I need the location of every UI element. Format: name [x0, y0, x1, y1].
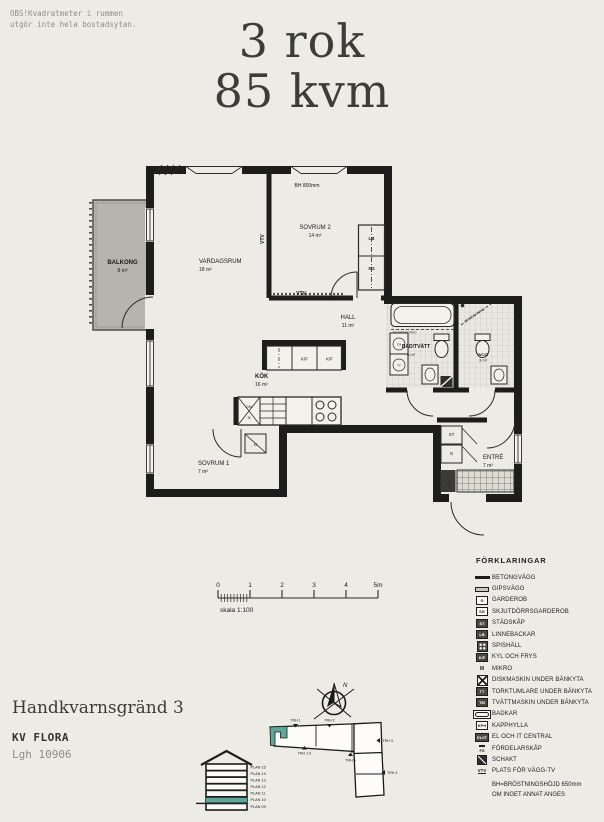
title-rooms: 3 rok	[0, 16, 604, 66]
address-block: Handkvarnsgränd 3 KV FLORA Lgh 10906	[12, 698, 184, 761]
highlighted-floor-band	[206, 798, 247, 803]
tm-label: TM	[397, 343, 402, 347]
dryer-icon: TT	[476, 687, 488, 696]
legend-label: SPISHÄLL	[492, 643, 521, 649]
legend-label: BADKAR	[492, 711, 517, 717]
trh-label-3: TRH 3	[383, 739, 393, 743]
scale-bar: 0 1 2 3 4 5m skala 1:100	[206, 578, 386, 620]
floor-label-11: PLAN 11	[251, 792, 266, 796]
scale-tick-5: 5m	[373, 582, 382, 589]
floor-labels: PLAN 15 PLAN 14 PLAN 13 PLAN 12 PLAN 11 …	[251, 766, 266, 809]
sink-wcd	[491, 366, 507, 384]
plaster-wall-icon	[475, 587, 489, 592]
scale-tick-3: 3	[312, 582, 316, 589]
page-title: 3 rok 85 kvm	[0, 16, 604, 116]
floor-label-14: PLAN 14	[251, 772, 266, 776]
g-sovrum1-label: G	[254, 442, 258, 447]
legend-item: SCHAKT	[472, 754, 600, 765]
trh-label-4: TRH 4	[387, 771, 397, 775]
coat-rack-area	[457, 470, 514, 492]
vardagsrum-area: 18 m²	[199, 267, 212, 273]
trh-label-5: TRH 5	[345, 759, 355, 763]
kitchen-counter	[234, 397, 342, 425]
vtv-label: VTV	[296, 291, 306, 297]
trh-label-6: TRH 1-2	[298, 752, 312, 756]
legend-item: FSFÖRDELARSKÅP	[472, 743, 600, 754]
tt-label: TT	[397, 364, 401, 368]
street-address: Handkvarnsgränd 3	[12, 698, 184, 718]
legend-label: PLATS FÖR VÄGG-TV	[492, 768, 555, 774]
legend-label: KYL OCH FRYS	[492, 654, 537, 660]
balkong-area: 8 m²	[118, 268, 128, 274]
north-label: N	[343, 683, 348, 689]
legend-label: KAPPHYLLA	[492, 723, 528, 729]
legend-item: LBLINNEBACKAR	[472, 629, 600, 640]
building-elevation: PLAN 15 PLAN 14 PLAN 13 PLAN 12 PLAN 11 …	[196, 748, 276, 816]
entre-area: 7 m²	[483, 463, 493, 469]
washer-dryer-stack	[390, 333, 408, 375]
trh-label-1: TRH 1	[290, 719, 300, 723]
footnote-line-2: OM INGET ANNAT ANGES	[492, 791, 600, 801]
roof	[201, 751, 252, 765]
hall-label: HALL	[340, 315, 356, 321]
legend-item: BETONGVÄGG	[472, 572, 600, 583]
wardrobe-icon: G	[476, 596, 488, 605]
legend-label: TVÄTTMASKIN UNDER BÄNKYTA	[492, 700, 589, 706]
legend-item: KPHKAPPHYLLA	[472, 720, 600, 731]
scale-tick-2: 2	[280, 582, 284, 589]
legend-label: MIKRO	[492, 666, 512, 672]
floor-plan: BALKONG 8 m² VARDAGSRUM 18 m² SOVRUM 2 1…	[85, 148, 535, 540]
legend-label: SKJUTDÖRRSGARDEROB	[492, 609, 569, 615]
scale-tick-1: 1	[248, 582, 252, 589]
sliding-wardrobe-icon: SG	[476, 607, 488, 616]
vardagsrum-label: VARDAGSRUM	[199, 259, 242, 265]
legend-label: GIPSVÄGG	[492, 586, 524, 592]
legend-label: DISKMASKIN UNDER BÄNKYTA	[492, 677, 584, 683]
wcd-label: WC/D	[478, 352, 489, 357]
legend-label: EL OCH IT CENTRAL	[492, 734, 552, 740]
scale-tick-0: 0	[216, 582, 220, 589]
bh-label: BH 800mm	[294, 183, 319, 189]
washer-icon: TM	[476, 698, 488, 707]
balkong-label: BALKONG	[107, 260, 138, 266]
dm-label: DM	[246, 405, 251, 409]
coat-rack-icon: KPH	[476, 721, 488, 730]
sink-bad	[422, 365, 438, 384]
floor-label-13: PLAN 13	[251, 779, 266, 783]
legend-item: MMIKRO	[472, 663, 600, 674]
legend-footnote: BH=BRÖSTNINGSHÖJD 650mm OM INGET ANNAT A…	[492, 781, 600, 800]
legend-item: GGARDEROB	[472, 595, 600, 606]
legend-item: EL/ITEL OCH IT CENTRAL	[472, 731, 600, 742]
m-label: M	[248, 416, 251, 420]
microwave-icon: M	[480, 666, 484, 672]
fridge-freezer-icon: K/F	[476, 653, 488, 662]
toilet-bad	[434, 334, 449, 358]
distribution-cabinet-icon: FS	[479, 745, 484, 753]
legend: FÖRKLARINGAR BETONGVÄGG GIPSVÄGG GGARDER…	[472, 556, 600, 800]
legend-item: STSTÄDSKÅP	[472, 618, 600, 629]
vtv-rotated-label: VTV	[260, 233, 266, 243]
legend-item: TTTORKTUMLARE UNDER BÄNKYTA	[472, 686, 600, 697]
legend-item: TMTVÄTTMASKIN UNDER BÄNKYTA	[472, 697, 600, 708]
scale-caption: skala 1:100	[220, 607, 254, 614]
legend-item: SGSKJUTDÖRRSGARDEROB	[472, 606, 600, 617]
sovrum1-label: SOVRUM 1	[198, 461, 230, 467]
g-entre-label: G	[450, 451, 454, 456]
legend-item: K/FKYL OCH FRYS	[472, 652, 600, 663]
legend-label: STÄDSKÅP	[492, 620, 525, 626]
schakt-symbol	[441, 376, 453, 387]
floor-label-15: PLAN 15	[251, 766, 266, 770]
linen-shelves-icon: LB	[476, 630, 488, 639]
shaft-icon	[477, 755, 487, 765]
st-label: ST	[449, 432, 455, 437]
hob-icon	[477, 641, 488, 652]
legend-label: LINNEBACKAR	[492, 632, 535, 638]
hall-area: 11 m²	[342, 323, 355, 329]
legend-title: FÖRKLARINGAR	[476, 556, 600, 565]
sovrum2-label: SOVRUM 2	[299, 225, 331, 231]
entre-label: ENTRÉ	[483, 454, 503, 461]
entre-closets	[441, 426, 477, 463]
floor-label-09: PLAN 09	[251, 805, 266, 809]
kok-area: 16 m²	[255, 382, 268, 388]
closet-lb-sg	[359, 225, 385, 290]
compass: N	[314, 683, 354, 719]
legend-label: FÖRDELARSKÅP	[492, 746, 542, 752]
legend-item: BADKAR	[472, 709, 600, 720]
legend-label: SCHAKT	[492, 757, 517, 763]
concrete-wall-icon	[475, 576, 490, 580]
footnote-line-1: BH=BRÖSTNINGSHÖJD 650mm	[492, 781, 600, 791]
kf-label-1: K/F	[301, 357, 308, 362]
legend-label: BETONGVÄGG	[492, 575, 536, 581]
title-area: 85 kvm	[0, 66, 604, 116]
bathtub-icon	[473, 710, 491, 719]
badtvatt-label: BAD/TVÄTT	[402, 343, 430, 350]
sovrum2-area: 14 m²	[309, 233, 322, 239]
electrical-central-icon: EL/IT	[475, 733, 489, 742]
fridge-freezer-unit	[262, 340, 346, 370]
legend-item: VTVPLATS FÖR VÄGG-TV	[472, 766, 600, 777]
floor-label-10: PLAN 10	[251, 798, 266, 802]
apartment-number: Lgh 10906	[12, 748, 184, 761]
legend-item: SPISHÄLL	[472, 640, 600, 651]
floor-label-12: PLAN 12	[251, 785, 266, 789]
dishwasher-icon	[477, 675, 488, 686]
legend-label: TORKTUMLARE UNDER BÄNKYTA	[492, 689, 592, 695]
legend-item: GIPSVÄGG	[472, 583, 600, 594]
lb-label: LB	[369, 236, 376, 241]
floorplan-page: OBS!Kvadratmeter i rummen utgör inte hel…	[0, 0, 604, 822]
legend-item: DISKMASKIN UNDER BÄNKYTA	[472, 675, 600, 686]
scale-tick-4: 4	[344, 582, 348, 589]
wall-tv-icon: VTV	[478, 768, 487, 774]
draperistang-label: DRAPERISTÅNG	[393, 330, 417, 335]
bathtub	[391, 304, 454, 330]
kok-label: KÖK	[255, 373, 269, 380]
elit-label: EL/IT	[447, 477, 451, 484]
block-name: KV FLORA	[12, 731, 184, 744]
trh-label-2: TRH 2	[324, 719, 334, 723]
kf-label-2: K/F	[326, 357, 333, 362]
sg-label: SG	[368, 266, 375, 271]
legend-label: GARDEROB	[492, 597, 527, 603]
sovrum1-area: 7 m²	[198, 469, 208, 475]
cleaning-cabinet-icon: ST	[476, 619, 488, 628]
wcd-area: 3 m²	[479, 358, 488, 363]
site-plan: N TRH 1 TRH 2 TRH 3 TRH 4 TRH 5 TRH	[264, 676, 418, 822]
badtvatt-area: 6 m²	[407, 352, 416, 357]
